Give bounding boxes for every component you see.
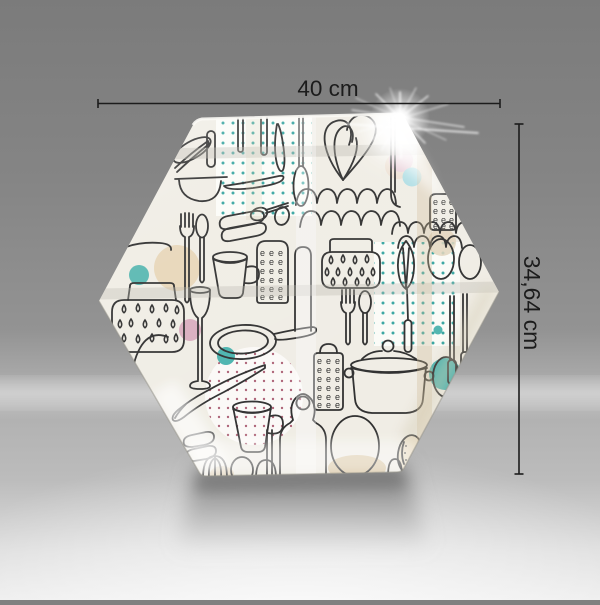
svg-text:40 cm: 40 cm (297, 76, 358, 101)
svg-text:34,64 cm: 34,64 cm (519, 256, 545, 351)
